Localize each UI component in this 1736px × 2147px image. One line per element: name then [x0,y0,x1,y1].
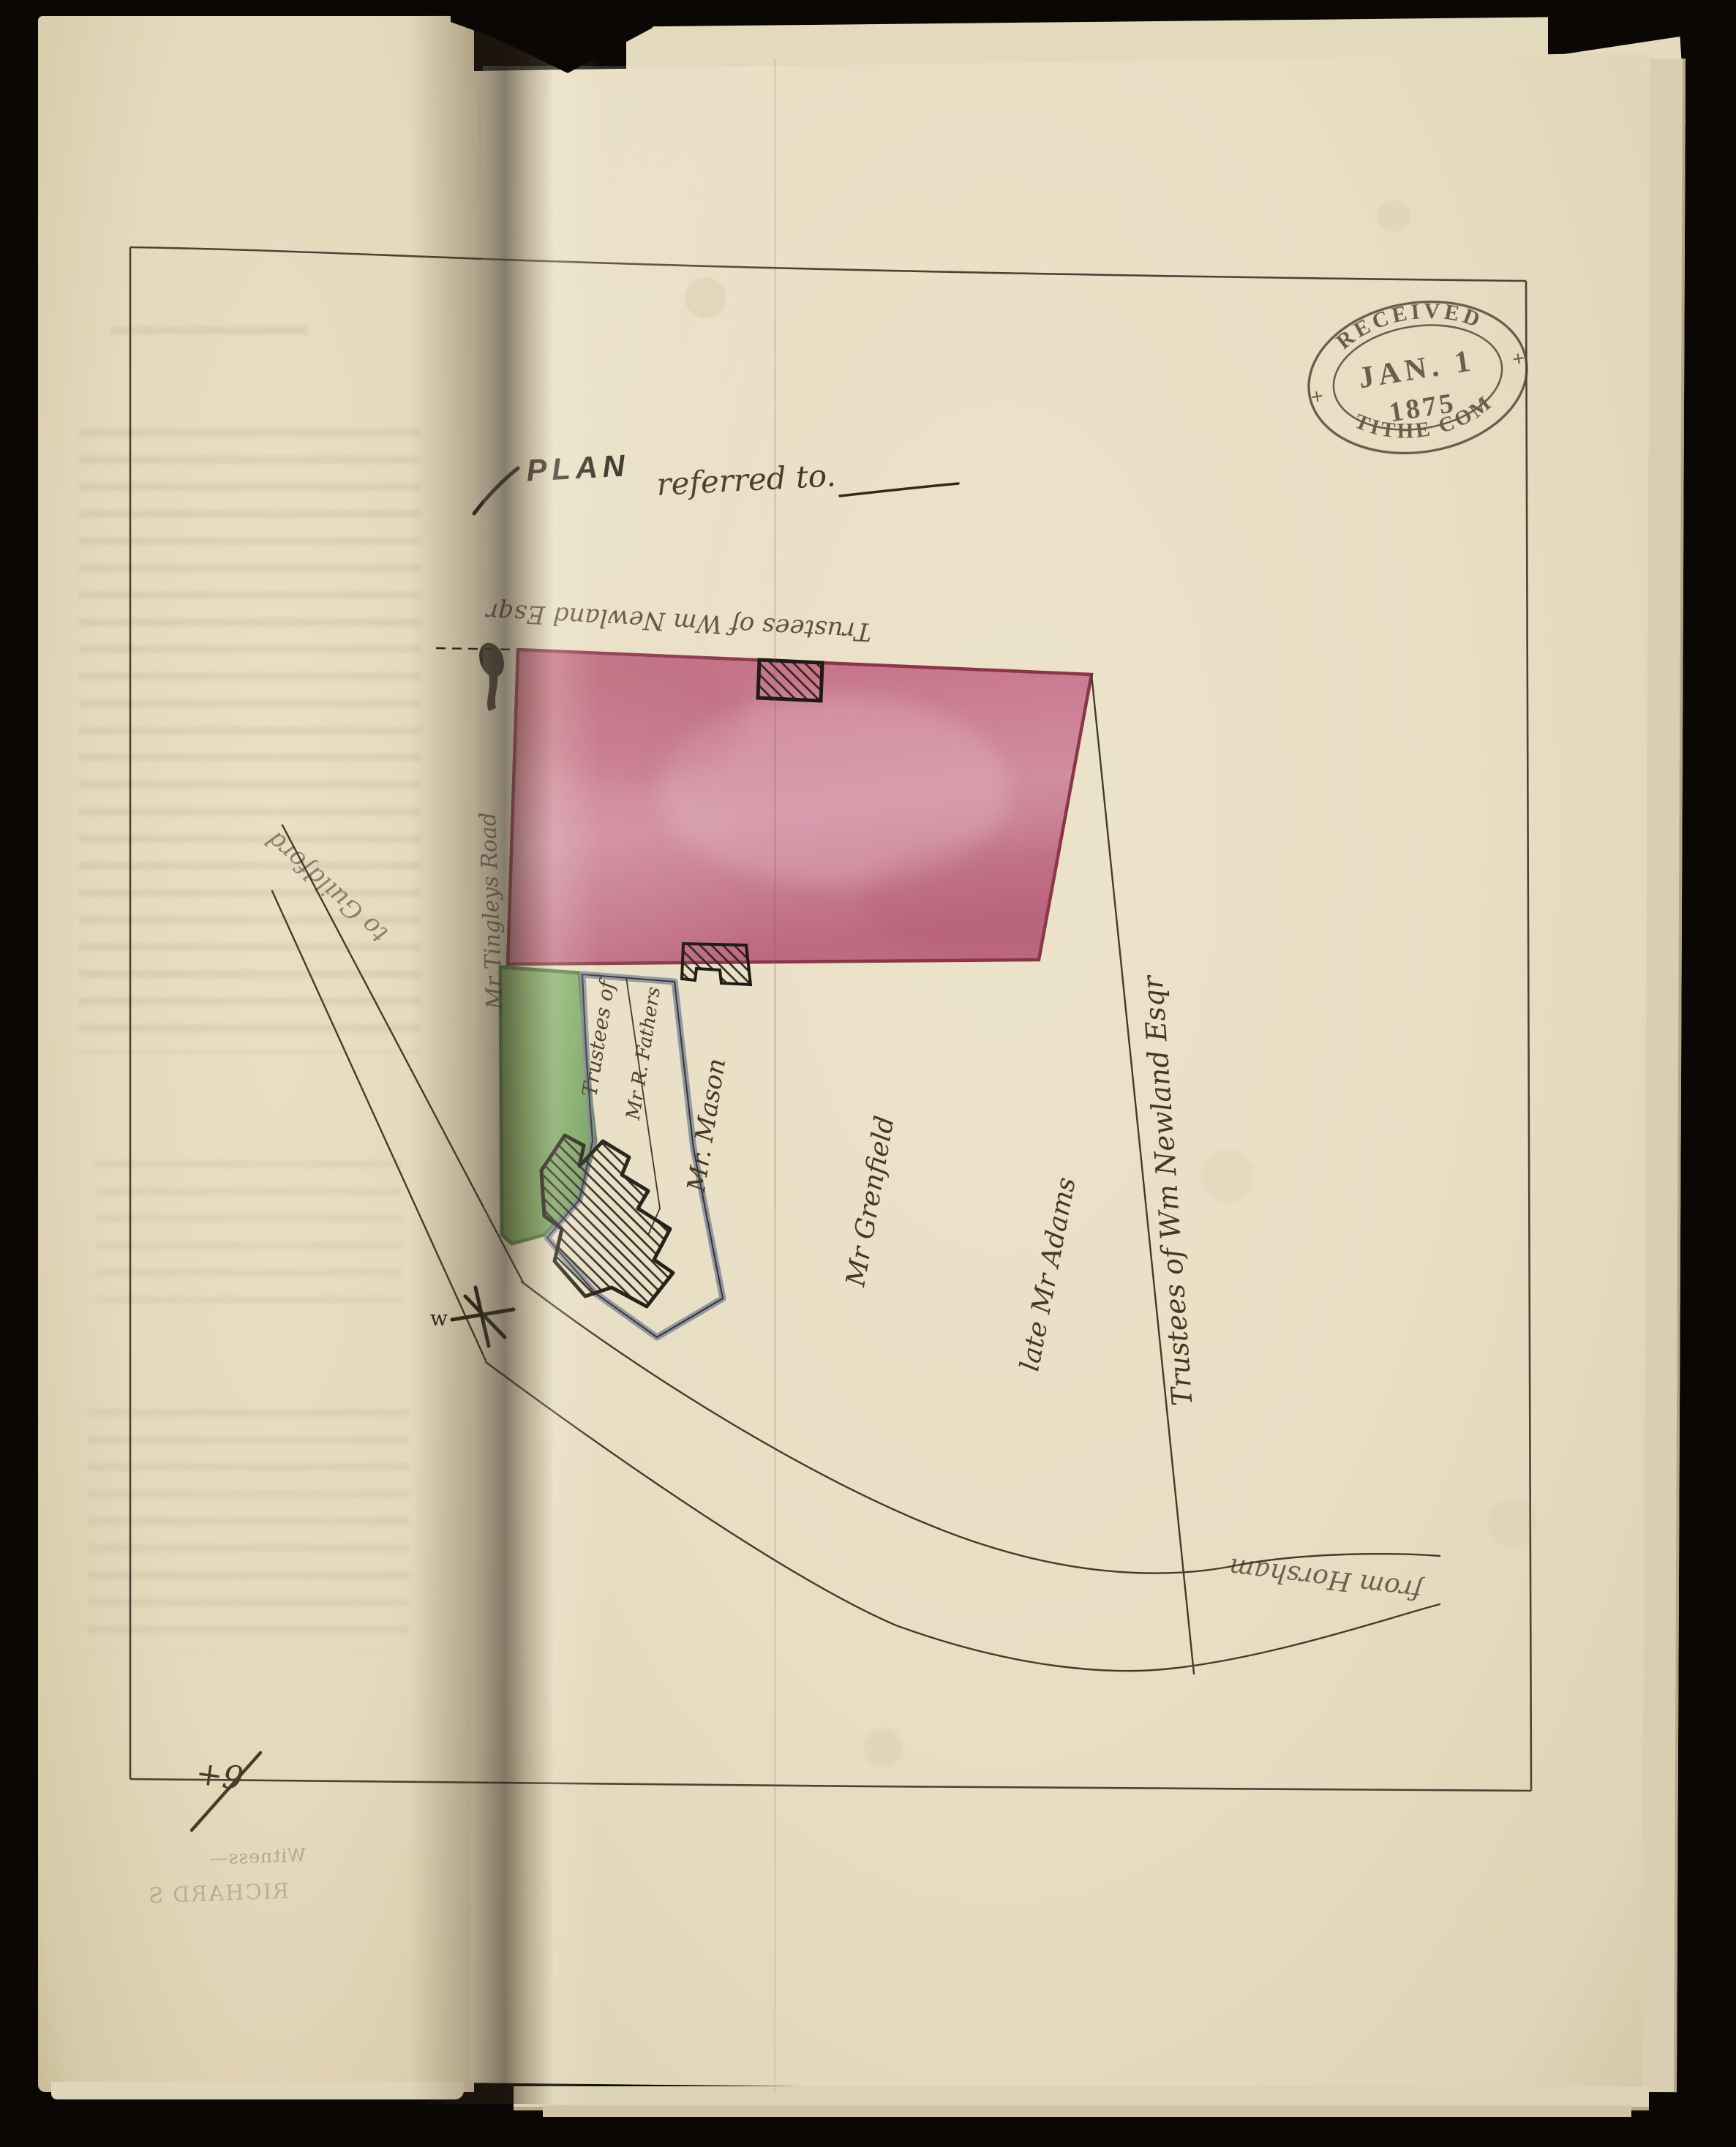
photographed-book-spread: RECEIVED JAN. 1 1875 TITHE COM + + PLAN … [0,0,1736,2147]
plan-drawing: RECEIVED JAN. 1 1875 TITHE COM + + [0,0,1736,2147]
label-plus-nine-mark: +9 [193,1754,245,1798]
road-upper-edge [522,1282,1440,1573]
showthrough-richard: RICHARD S [147,1879,290,1909]
road-lower-edge [486,1362,1440,1671]
building-hatched-top [758,660,822,701]
dashed-boundary-tie [436,648,515,650]
title-underline [840,484,958,496]
stamp-date-text: JAN. 1 [1356,344,1477,395]
showthrough-witness: Witness— [208,1844,307,1869]
title-plan: PLAN [525,448,631,488]
newland-parcel [436,639,1127,985]
title-flourish [474,468,518,514]
label-west-mark: w [430,1306,448,1331]
building-hatched-bottom [682,944,751,985]
survey-cross-mark [452,1287,514,1346]
guildford-road-edge-b [272,891,486,1361]
received-stamp: RECEIVED JAN. 1 1875 TITHE COM + + [1297,284,1538,469]
